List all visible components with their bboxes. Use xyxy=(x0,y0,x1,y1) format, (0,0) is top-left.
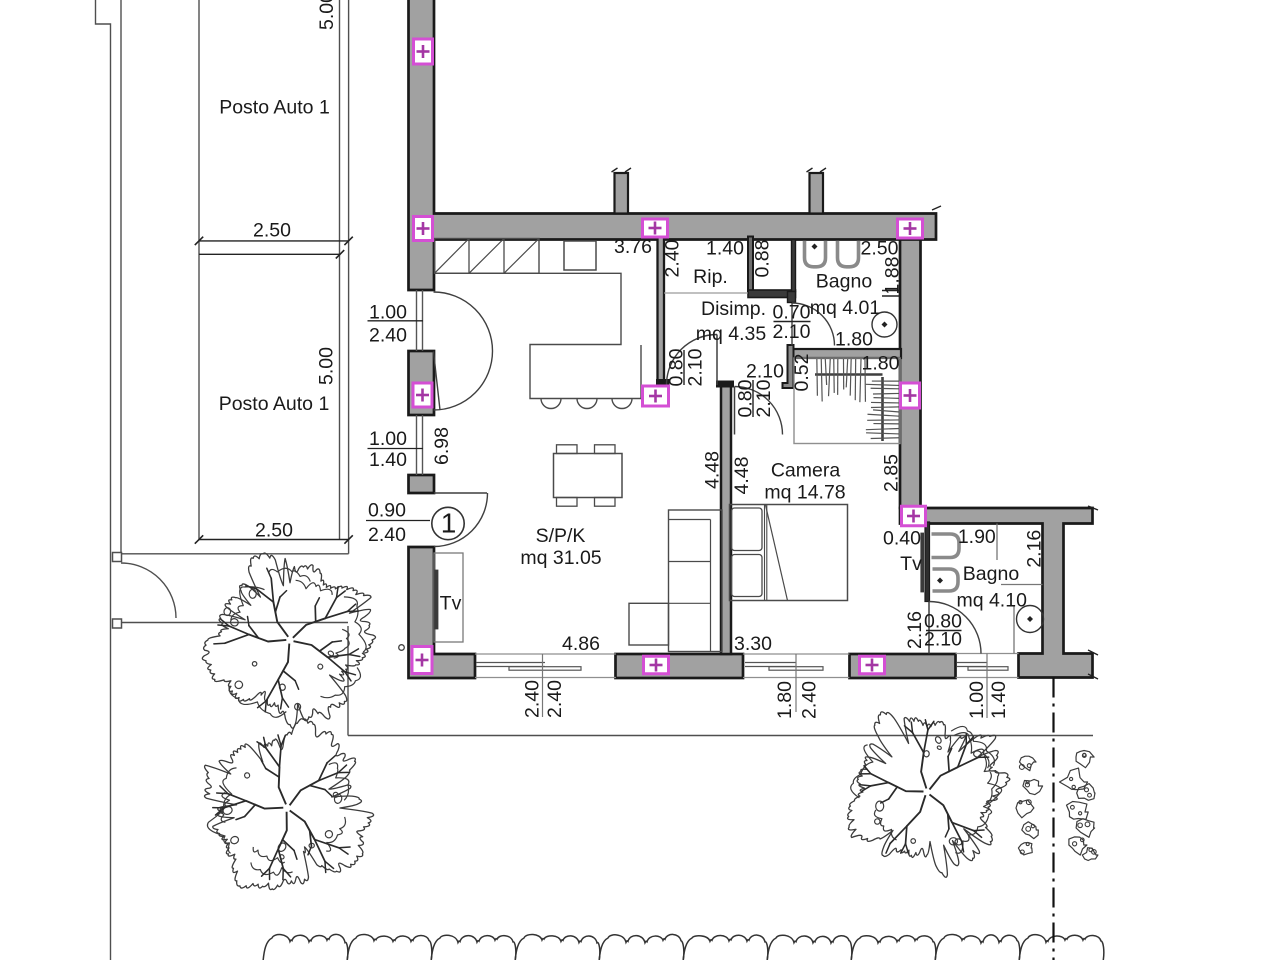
svg-text:2.10: 2.10 xyxy=(753,379,775,417)
svg-text:0.40: 0.40 xyxy=(883,528,921,550)
svg-text:5.00: 5.00 xyxy=(316,0,338,30)
svg-text:3.76: 3.76 xyxy=(614,236,652,258)
svg-text:2.50: 2.50 xyxy=(255,519,293,541)
svg-text:mq 31.05: mq 31.05 xyxy=(520,547,601,569)
svg-text:2.10: 2.10 xyxy=(773,321,811,343)
svg-text:Rip.: Rip. xyxy=(693,266,728,288)
svg-text:5.00: 5.00 xyxy=(315,347,337,385)
svg-text:1.40: 1.40 xyxy=(706,238,744,260)
svg-text:2.40: 2.40 xyxy=(661,239,683,277)
svg-text:3.30: 3.30 xyxy=(734,633,772,655)
svg-text:2.50: 2.50 xyxy=(861,238,899,260)
svg-text:2.16: 2.16 xyxy=(1023,530,1045,568)
svg-text:1.88: 1.88 xyxy=(881,257,903,295)
svg-text:Tv: Tv xyxy=(900,553,922,575)
svg-text:4.48: 4.48 xyxy=(731,457,753,495)
svg-text:Posto Auto 1: Posto Auto 1 xyxy=(219,97,330,119)
svg-text:2.10: 2.10 xyxy=(684,348,706,386)
svg-text:2.85: 2.85 xyxy=(880,454,902,492)
svg-text:1.80: 1.80 xyxy=(774,681,796,719)
svg-text:mq 14.78: mq 14.78 xyxy=(764,482,845,504)
svg-text:0.90: 0.90 xyxy=(368,500,406,522)
svg-text:1: 1 xyxy=(441,508,457,539)
svg-text:Bagno: Bagno xyxy=(963,563,1020,585)
svg-text:mq 4.35: mq 4.35 xyxy=(696,323,767,345)
svg-text:1.90: 1.90 xyxy=(958,526,996,548)
svg-text:2.40: 2.40 xyxy=(521,680,543,718)
svg-text:0.88: 0.88 xyxy=(751,240,773,278)
svg-text:mq 4.10: mq 4.10 xyxy=(956,590,1027,612)
svg-text:2.40: 2.40 xyxy=(544,680,566,718)
svg-text:2.50: 2.50 xyxy=(253,220,291,242)
svg-text:1.40: 1.40 xyxy=(369,449,407,471)
svg-text:2.40: 2.40 xyxy=(369,325,407,347)
svg-text:4.48: 4.48 xyxy=(701,451,723,489)
svg-text:2.40: 2.40 xyxy=(798,681,820,719)
svg-text:1.00: 1.00 xyxy=(369,428,407,450)
svg-text:1.80: 1.80 xyxy=(835,329,873,351)
svg-text:Tv: Tv xyxy=(440,593,462,615)
svg-text:2.16: 2.16 xyxy=(904,611,926,649)
svg-text:2.10: 2.10 xyxy=(924,629,962,651)
svg-text:1.00: 1.00 xyxy=(966,681,988,719)
svg-text:2.10: 2.10 xyxy=(746,361,784,383)
svg-text:2.40: 2.40 xyxy=(368,524,406,546)
svg-text:0.52: 0.52 xyxy=(791,354,813,392)
svg-text:Camera: Camera xyxy=(771,460,841,482)
svg-text:4.86: 4.86 xyxy=(562,633,600,655)
svg-text:6.98: 6.98 xyxy=(431,427,453,465)
svg-text:mq 4.01: mq 4.01 xyxy=(810,297,880,319)
svg-text:Posto Auto 1: Posto Auto 1 xyxy=(219,393,330,415)
svg-text:S/P/K: S/P/K xyxy=(536,525,586,547)
svg-text:Disimp.: Disimp. xyxy=(701,298,766,320)
svg-text:Bagno: Bagno xyxy=(816,271,873,293)
svg-text:1.80: 1.80 xyxy=(862,353,900,375)
svg-text:1.40: 1.40 xyxy=(988,681,1010,719)
